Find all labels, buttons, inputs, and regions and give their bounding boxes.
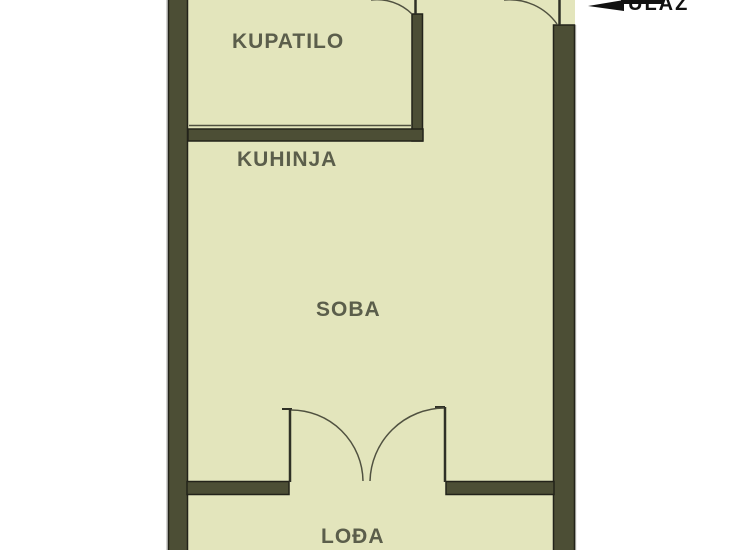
room-label-soba: SOBA bbox=[316, 298, 381, 322]
wall-bathroom-right bbox=[412, 14, 423, 141]
wall-loggia-right-segment bbox=[446, 482, 554, 495]
entrance-label-ulaz: ULAZ bbox=[628, 0, 689, 16]
room-label-lodja: LOĐA bbox=[321, 525, 385, 549]
wall-right-exterior bbox=[554, 25, 575, 550]
wall-loggia-left-segment bbox=[187, 482, 289, 495]
wall-bathroom-bottom bbox=[188, 129, 423, 141]
room-label-kuhinja: KUHINJA bbox=[237, 148, 337, 172]
wall-left-exterior bbox=[169, 0, 188, 550]
floorplan-drawing bbox=[0, 0, 740, 550]
floorplan-screenshot: KUPATILO KUHINJA SOBA LOĐA ULAZ bbox=[0, 0, 740, 550]
room-label-kupatilo: KUPATILO bbox=[232, 30, 344, 54]
